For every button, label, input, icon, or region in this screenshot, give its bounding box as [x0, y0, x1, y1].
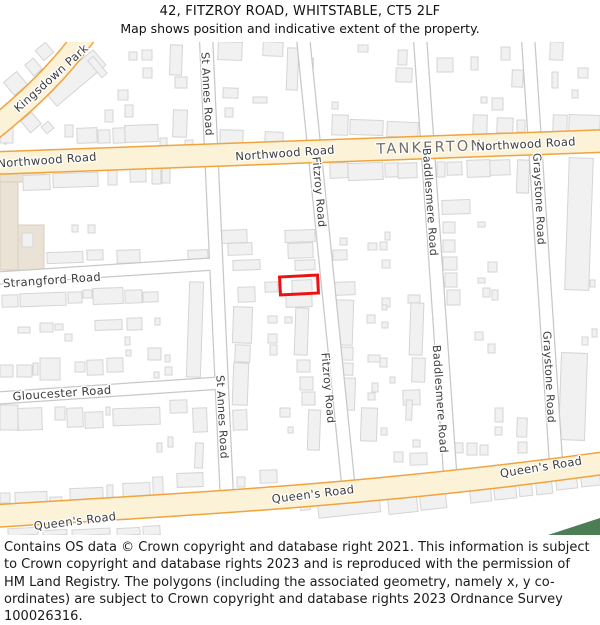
building — [497, 118, 514, 134]
building — [107, 358, 123, 373]
building — [495, 408, 503, 422]
building — [127, 318, 142, 331]
building — [153, 477, 164, 495]
building — [382, 322, 388, 328]
building — [512, 70, 524, 87]
building — [488, 262, 497, 272]
building — [237, 477, 245, 487]
building — [387, 121, 419, 137]
building — [113, 128, 126, 143]
building — [268, 334, 277, 343]
building — [380, 358, 387, 367]
building — [0, 493, 10, 503]
building — [406, 400, 413, 420]
building — [235, 345, 251, 363]
building — [55, 324, 63, 330]
map-svg: Kingsdown ParkNorthwood RoadNorthwood Ro… — [0, 42, 600, 535]
building — [225, 108, 233, 117]
building — [410, 453, 427, 466]
building — [40, 323, 53, 332]
building — [265, 282, 278, 292]
building — [382, 260, 390, 268]
building — [447, 162, 462, 176]
building — [412, 358, 426, 382]
building — [75, 362, 85, 372]
building — [195, 443, 204, 468]
building — [232, 363, 248, 405]
building — [155, 318, 160, 325]
building — [286, 295, 312, 308]
building — [478, 278, 485, 283]
building — [0, 365, 13, 377]
building — [18, 408, 43, 431]
building — [148, 348, 161, 360]
building — [77, 128, 98, 144]
building — [270, 345, 277, 355]
building — [467, 160, 491, 178]
building — [516, 160, 529, 193]
building — [372, 383, 378, 392]
building — [87, 250, 103, 261]
building — [72, 528, 110, 535]
building — [165, 367, 172, 375]
building — [335, 282, 355, 296]
building — [170, 400, 187, 414]
building — [253, 97, 267, 103]
building — [18, 327, 30, 333]
building — [232, 307, 252, 344]
building — [35, 42, 53, 60]
page-subtitle: Map shows position and indicative extent… — [0, 21, 600, 36]
building — [87, 360, 104, 376]
building — [233, 260, 260, 271]
building — [98, 130, 110, 143]
copyright-notice: Contains OS data © Crown copyright and d… — [0, 537, 600, 625]
building — [302, 392, 315, 405]
building — [380, 242, 387, 250]
building — [85, 412, 104, 429]
building — [332, 102, 338, 109]
building — [88, 225, 95, 233]
building — [117, 527, 140, 535]
building — [17, 365, 32, 377]
building — [358, 45, 368, 52]
building — [437, 58, 453, 72]
building — [409, 303, 424, 355]
building — [300, 377, 313, 390]
building — [368, 355, 380, 362]
building — [294, 308, 309, 355]
building — [285, 229, 315, 242]
building — [125, 124, 159, 142]
building — [443, 240, 455, 252]
building — [360, 408, 377, 442]
building — [23, 175, 51, 191]
building — [475, 332, 483, 340]
building — [385, 163, 398, 177]
building — [350, 119, 384, 135]
building — [220, 230, 247, 244]
building — [572, 90, 578, 98]
building — [390, 377, 395, 383]
building — [297, 360, 310, 372]
building — [106, 407, 110, 415]
building — [268, 316, 277, 323]
building — [228, 243, 252, 256]
building — [590, 280, 595, 287]
building — [381, 428, 387, 435]
building — [396, 68, 412, 83]
building — [467, 443, 477, 455]
building — [443, 222, 455, 233]
building — [193, 408, 208, 432]
building — [442, 200, 470, 215]
building — [0, 405, 18, 430]
building — [288, 427, 293, 433]
building — [125, 105, 133, 117]
building — [340, 238, 347, 245]
building — [173, 110, 188, 137]
building — [288, 243, 314, 259]
building — [154, 372, 159, 378]
page-title: 42, FITZROY ROAD, WHITSTABLE, CT5 2LF — [0, 4, 600, 19]
building — [447, 290, 460, 305]
building — [488, 344, 495, 353]
building — [558, 353, 587, 441]
building — [295, 260, 315, 271]
building — [118, 90, 128, 100]
building — [65, 334, 72, 341]
building — [550, 42, 564, 60]
building — [483, 288, 490, 297]
building — [186, 282, 203, 377]
building — [83, 290, 92, 298]
building — [67, 408, 84, 428]
building — [495, 427, 502, 435]
screenshot-root: 42, FITZROY ROAD, WHITSTABLE, CT5 2LF Ma… — [0, 0, 600, 625]
building — [398, 50, 408, 65]
building — [168, 437, 173, 447]
building — [501, 47, 510, 60]
tan-landmark-area — [0, 182, 18, 270]
building — [93, 287, 124, 304]
building — [471, 57, 478, 70]
building — [332, 115, 349, 136]
building — [95, 320, 122, 331]
building — [2, 295, 18, 308]
building — [125, 337, 130, 345]
building — [22, 233, 33, 247]
building — [113, 407, 161, 426]
building — [143, 292, 158, 303]
building — [169, 45, 182, 75]
building — [333, 250, 347, 260]
building — [368, 393, 375, 400]
building — [382, 305, 387, 310]
building — [263, 42, 283, 56]
building — [307, 410, 320, 450]
building — [175, 77, 187, 88]
road-label-graystone-road-upper: Graystone Road — [530, 153, 548, 246]
building — [143, 68, 152, 78]
building — [492, 290, 498, 300]
building — [443, 257, 457, 270]
building — [53, 172, 98, 188]
building — [41, 121, 54, 134]
building — [177, 473, 203, 488]
building — [565, 158, 594, 291]
building — [481, 97, 487, 103]
building — [47, 251, 83, 263]
building — [552, 72, 558, 88]
building — [413, 440, 420, 447]
building — [480, 445, 488, 455]
building — [367, 315, 375, 323]
building — [582, 337, 588, 345]
building — [437, 162, 445, 177]
green-area — [548, 518, 600, 535]
building — [40, 358, 60, 380]
building — [105, 110, 113, 122]
building — [394, 452, 403, 462]
building — [286, 48, 298, 90]
building — [285, 317, 292, 323]
building — [72, 225, 78, 232]
building — [162, 168, 170, 183]
building — [117, 250, 140, 264]
building — [408, 295, 420, 303]
building — [68, 292, 82, 303]
building — [238, 287, 256, 303]
building — [129, 52, 137, 60]
building — [478, 222, 485, 227]
map-header: 42, FITZROY ROAD, WHITSTABLE, CT5 2LF Ma… — [0, 0, 600, 42]
building — [492, 98, 503, 110]
building — [108, 170, 117, 185]
building — [142, 50, 152, 60]
building — [385, 232, 390, 240]
building — [143, 526, 160, 535]
building — [260, 470, 277, 484]
building — [65, 125, 73, 137]
building — [578, 68, 588, 78]
building — [490, 160, 511, 176]
building — [398, 163, 418, 179]
building — [55, 407, 65, 420]
building — [233, 410, 248, 430]
map-area: Kingsdown ParkNorthwood RoadNorthwood Ro… — [0, 42, 600, 535]
building — [368, 243, 377, 250]
building — [518, 442, 527, 453]
building — [125, 290, 142, 304]
building — [445, 273, 457, 287]
building — [152, 168, 161, 184]
building — [280, 408, 290, 417]
building — [126, 350, 131, 356]
building — [223, 88, 238, 99]
building — [218, 42, 243, 60]
building — [33, 363, 38, 375]
building — [165, 355, 170, 362]
building — [348, 162, 384, 180]
building — [330, 163, 349, 179]
building — [517, 418, 528, 437]
building — [592, 329, 597, 337]
building — [157, 443, 162, 452]
building — [517, 120, 525, 132]
building — [20, 292, 66, 307]
